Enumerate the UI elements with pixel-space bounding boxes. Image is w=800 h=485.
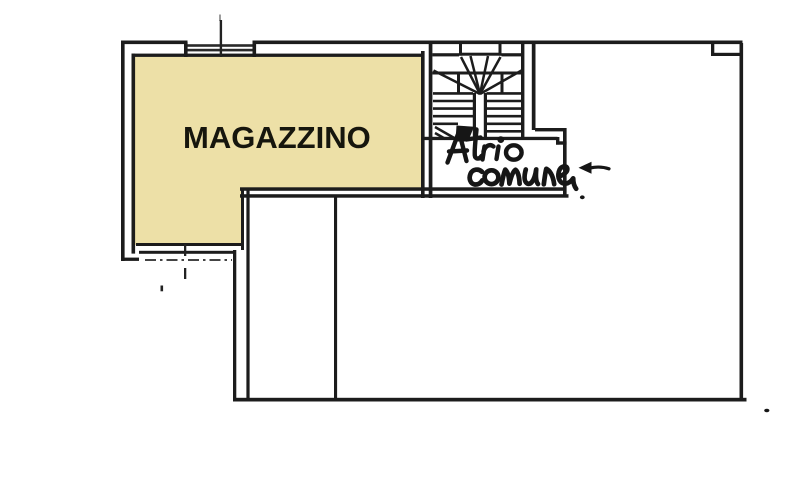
svg-text:MAGAZZINO: MAGAZZINO [183,120,371,155]
